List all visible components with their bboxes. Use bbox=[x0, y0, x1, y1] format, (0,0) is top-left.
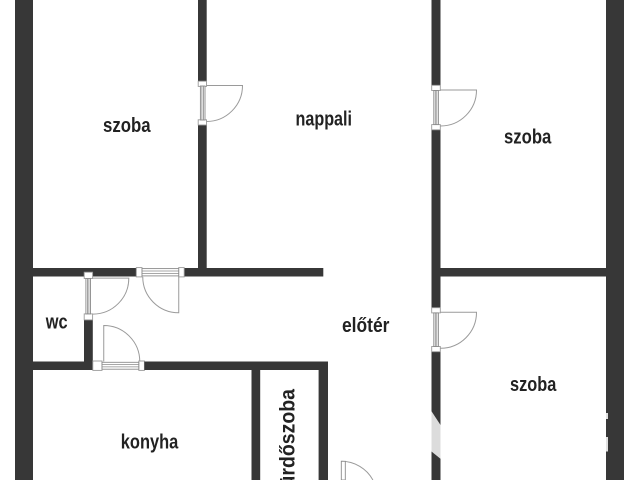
svg-text:szoba: szoba bbox=[103, 115, 151, 137]
svg-text:nappali: nappali bbox=[296, 109, 353, 131]
svg-text:szoba: szoba bbox=[510, 374, 557, 396]
svg-text:szoba: szoba bbox=[504, 127, 552, 149]
svg-text:fürdőszoba: fürdőszoba bbox=[276, 389, 299, 480]
svg-text:wc: wc bbox=[45, 311, 68, 333]
svg-text:előtér: előtér bbox=[342, 315, 390, 337]
svg-text:konyha: konyha bbox=[121, 431, 179, 453]
